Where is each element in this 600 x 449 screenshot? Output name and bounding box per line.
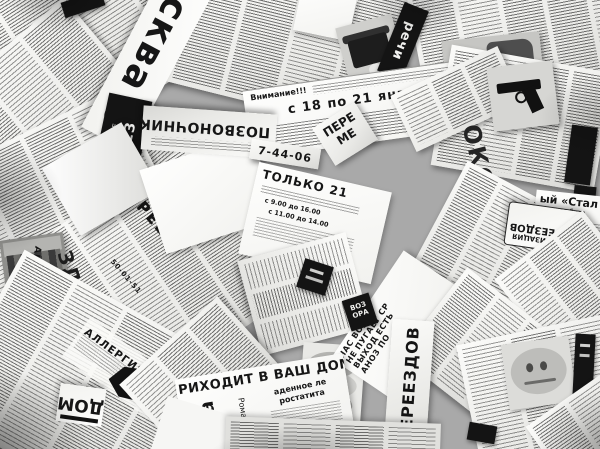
strip-speck	[580, 344, 590, 348]
dom-tag: ДОМ	[56, 383, 107, 427]
newspaper-collage: речи осква в КВАРТИРНЫЕ ПЕРЕЕЗ ПЕРЕЕЗ 50…	[0, 0, 600, 449]
strip-speck-2	[579, 354, 589, 358]
face-blob	[508, 344, 570, 397]
bottom-black-chip	[467, 422, 498, 445]
text-columns	[229, 421, 436, 449]
phone1-label: 7-44-06	[257, 143, 313, 164]
chip-speck	[310, 268, 324, 275]
chip-speck-2	[305, 275, 323, 283]
handgun-trigger	[514, 91, 527, 104]
